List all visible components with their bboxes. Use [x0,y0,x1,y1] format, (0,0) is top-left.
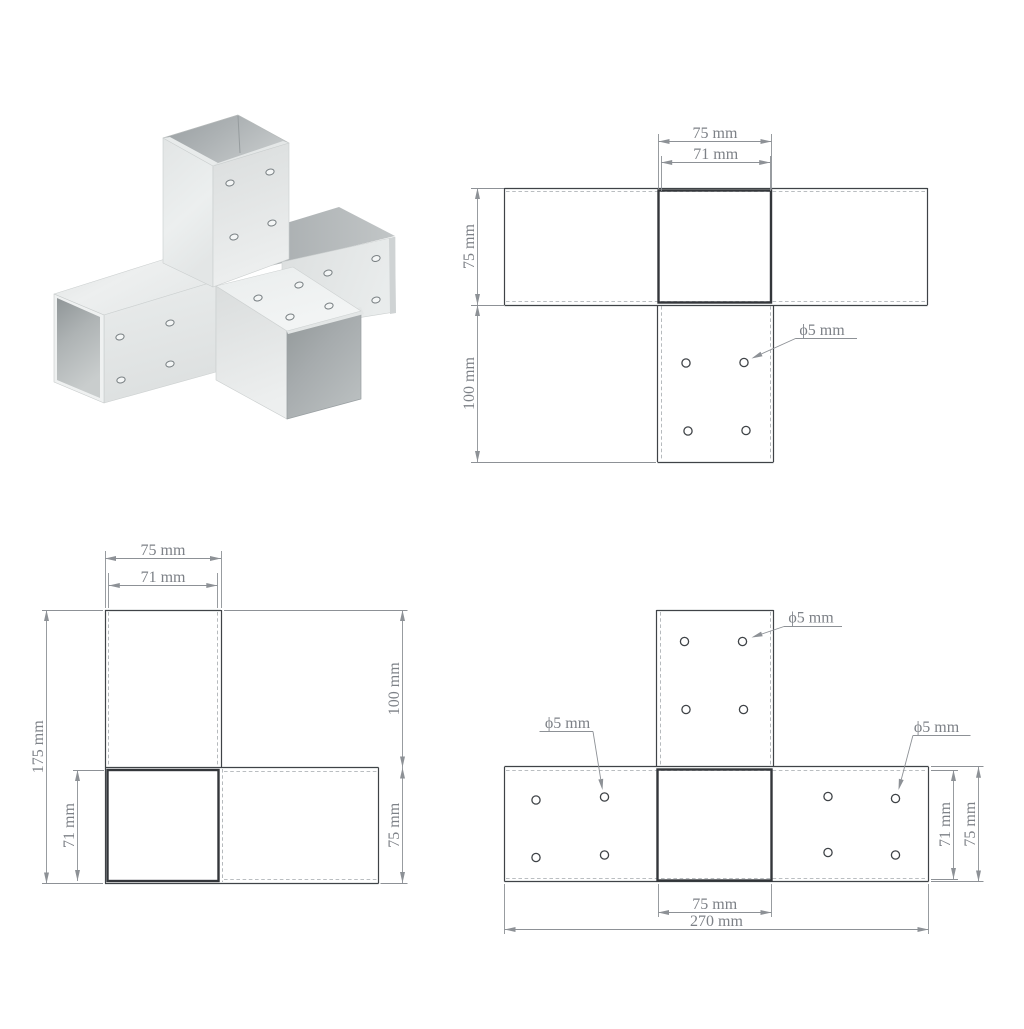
svg-text:ϕ5 mm: ϕ5 mm [799,322,845,339]
svg-text:75 mm: 75 mm [962,801,979,846]
svg-text:75 mm: 75 mm [692,896,737,913]
svg-text:71 mm: 71 mm [937,802,954,847]
svg-text:75 mm: 75 mm [461,224,478,269]
svg-text:ϕ5 mm: ϕ5 mm [914,719,960,736]
svg-text:100 mm: 100 mm [386,662,403,715]
svg-text:71 mm: 71 mm [141,569,186,586]
svg-text:ϕ5 mm: ϕ5 mm [788,610,834,627]
svg-text:175 mm: 175 mm [30,720,47,773]
svg-text:ϕ5 mm: ϕ5 mm [545,715,591,732]
svg-text:71 mm: 71 mm [693,146,738,163]
svg-text:270 mm: 270 mm [690,913,743,930]
svg-text:75 mm: 75 mm [386,802,403,847]
svg-text:100 mm: 100 mm [461,357,478,410]
svg-text:75 mm: 75 mm [141,542,186,559]
svg-text:71 mm: 71 mm [61,803,78,848]
svg-text:75 mm: 75 mm [693,125,738,142]
